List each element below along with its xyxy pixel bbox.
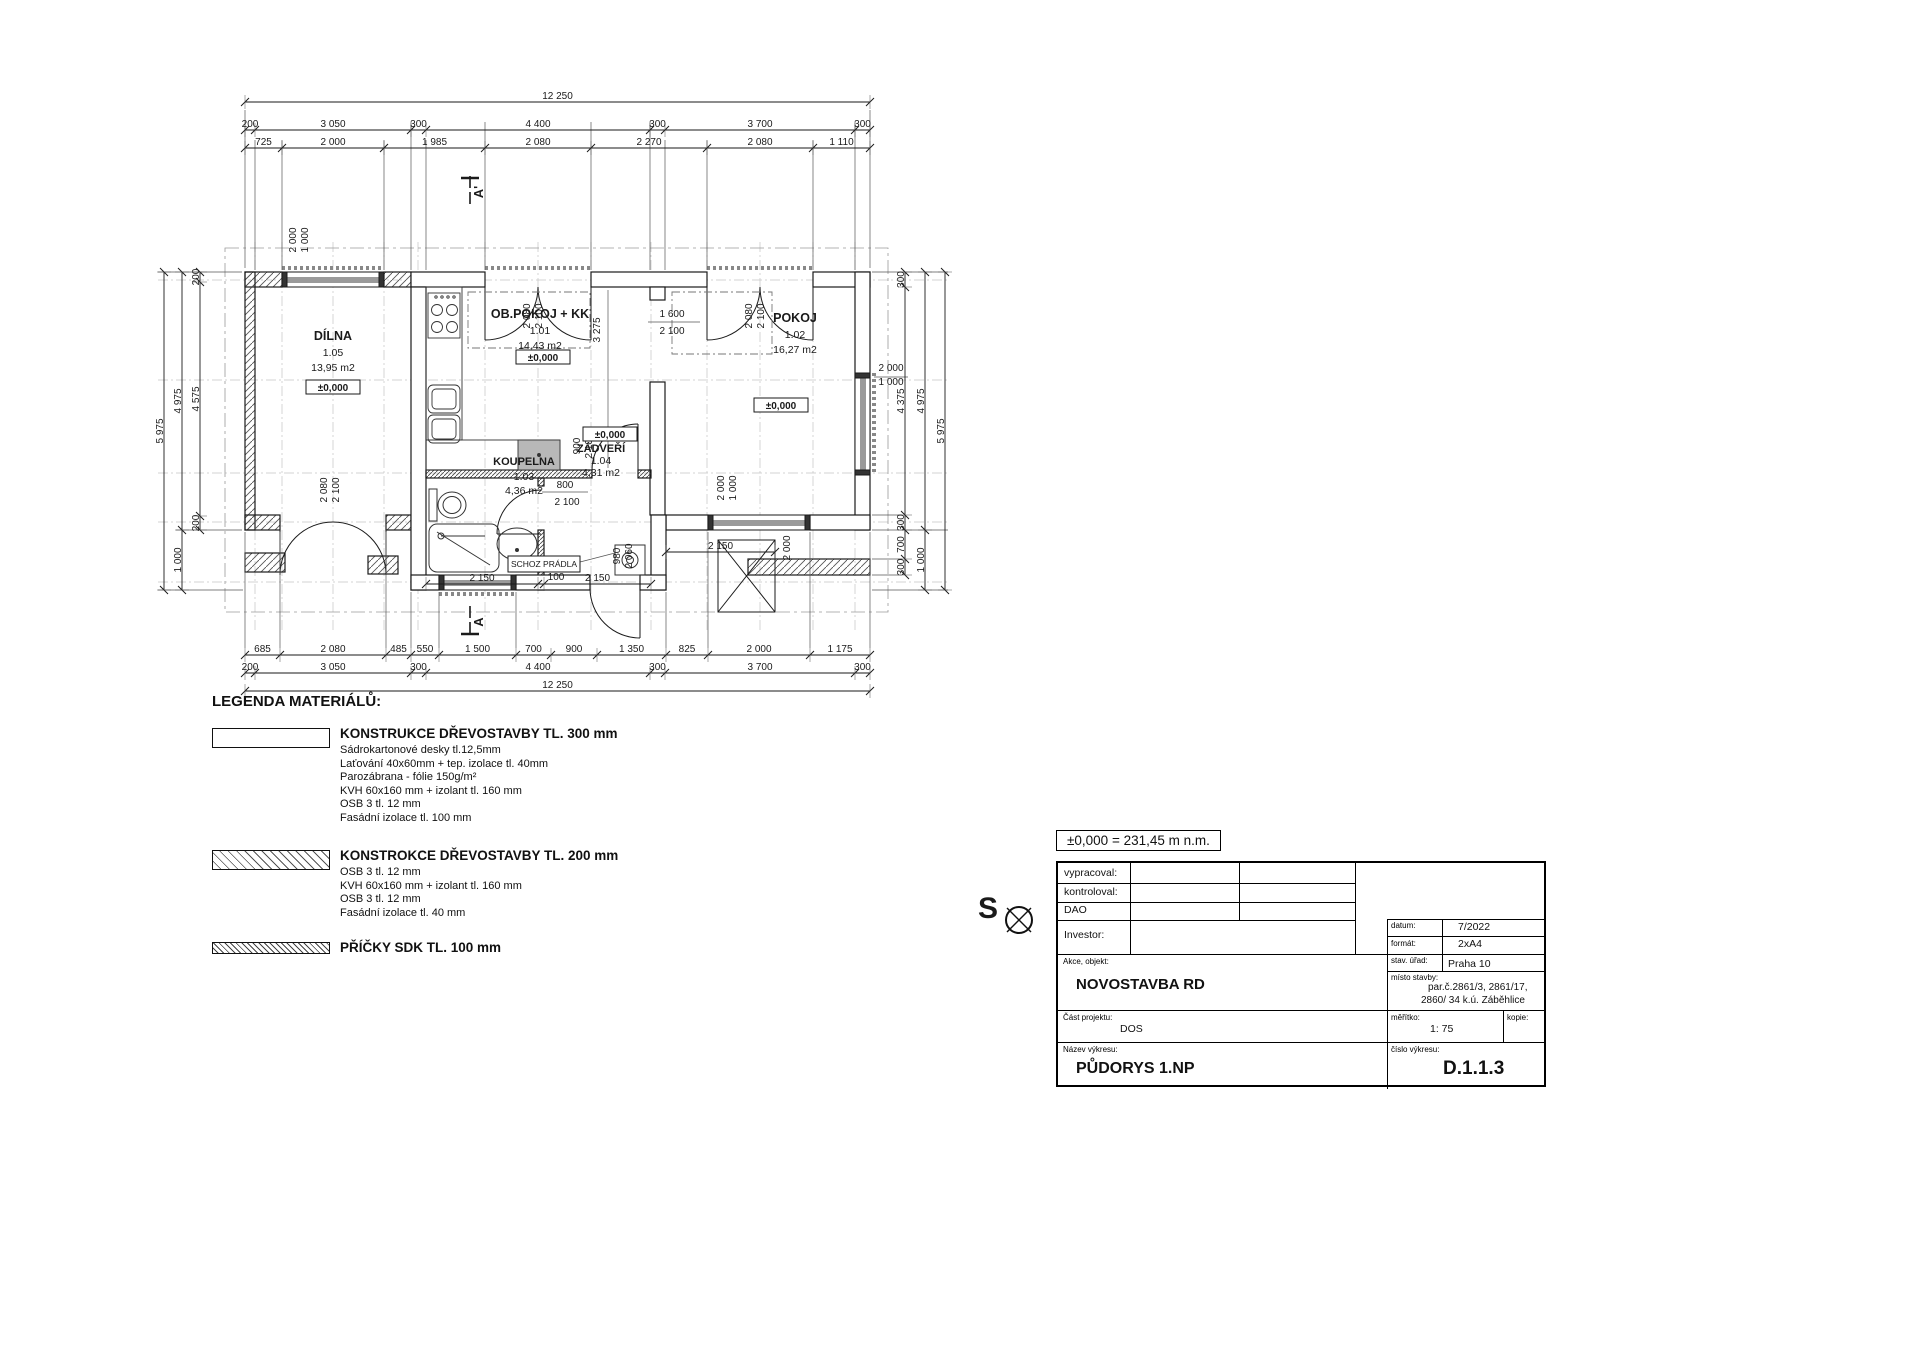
room-name: ZÁDVEŘÍ (577, 442, 626, 455)
tb-dao: DAO (1064, 904, 1087, 916)
dim-text: 550 (417, 644, 434, 655)
tb-akce-value: NOVOSTAVBA RD (1076, 976, 1205, 993)
tb-cislo-label: číslo výkresu: (1391, 1045, 1439, 1054)
dim-text: 4 575 (191, 386, 202, 411)
dim-text: 2 080 (525, 137, 550, 148)
room-number: 1.04 (591, 455, 612, 467)
legend-line: OSB 3 tl. 12 mm (340, 866, 632, 880)
tb-cast-label: Část projektu: (1063, 1013, 1112, 1022)
dim-text: 2 000 (716, 475, 727, 500)
dim-text: 300 (854, 119, 871, 130)
dim-text: 1 000 (173, 547, 184, 572)
room-name: OB.POKOJ + KK (491, 307, 589, 321)
room-labels: DÍLNA 1.05 13,95 m2 OB.POKOJ + KK 1.01 1… (311, 307, 817, 497)
toilet-icon (429, 489, 466, 521)
dim-text: 4 975 (173, 388, 184, 413)
level-mark: ±0,000 (766, 401, 797, 412)
room-name: KOUPELNA (493, 456, 555, 468)
tb-nazev-label: Název výkresu: (1063, 1045, 1118, 1054)
dim-text: 4 375 (896, 388, 907, 413)
dim-text: 200 (191, 268, 202, 285)
tb-kontroloval-label: kontroloval: (1064, 886, 1118, 898)
room-name: DÍLNA (314, 328, 352, 343)
dim-text: 725 (255, 137, 272, 148)
dim-text: 2 100 (659, 326, 684, 337)
dim-text: 100 (548, 572, 565, 583)
legend-item-title: KONSTROKCE DŘEVOSTAVBY TL. 200 mm (340, 848, 632, 863)
window-dilna-top (282, 272, 384, 287)
tb-misto-value1: par.č.2861/3, 2861/17, (1428, 982, 1528, 993)
tb-misto-label: místo stavby: (1391, 973, 1438, 982)
dimension-lines: 12 2502003 0503004 4003003 7003007252 00… (155, 91, 952, 698)
dim-text: 300 (896, 558, 907, 575)
dim-text: 5 975 (155, 418, 166, 443)
dim-text: 4 400 (525, 119, 550, 130)
dim-text: 1 000 (300, 227, 311, 252)
dim-text: 1 110 (829, 137, 854, 148)
north-arrow: S (970, 878, 1050, 953)
tb-urad-value: Praha 10 (1448, 958, 1491, 970)
legend: LEGENDA MATERIÁLŮ: KONSTRUKCE DŘEVOSTAVB… (212, 693, 632, 710)
dim-text: 2 100 (554, 497, 579, 508)
tb-meritko-label: měřítko: (1391, 1013, 1420, 1022)
dim-text: 300 (649, 662, 666, 673)
dim-text: 1 600 (659, 309, 684, 320)
dim-text: 3 050 (320, 662, 345, 673)
level-mark-texts: ±0,000 ±0,000 ±0,000 ±0,000 (318, 353, 797, 441)
dim-text: 2 000 (288, 227, 299, 252)
dim-text: 300 (896, 514, 907, 531)
dim-text: 2 150 (469, 573, 494, 584)
dim-text: 300 (854, 662, 871, 673)
window-pokoj-right (855, 373, 870, 475)
room-number: 1.03 (514, 471, 535, 483)
dim-text: 2 150 (585, 573, 610, 584)
dim-text: 980 (612, 547, 623, 564)
dim-text: 2 080 (747, 137, 772, 148)
legend-item-300: KONSTRUKCE DŘEVOSTAVBY TL. 300 mm Sádrok… (212, 726, 632, 825)
dim-text: 700 (896, 536, 907, 553)
legend-line: OSB 3 tl. 12 mm (340, 798, 632, 812)
page: 12 2502003 0503004 4003003 7003007252 00… (0, 0, 1920, 1357)
room-number: 1.05 (323, 347, 344, 359)
dim-text: 2 000 (782, 535, 793, 560)
room-number: 1.02 (785, 329, 806, 341)
room-name: POKOJ (773, 311, 817, 325)
dim-text: 2 270 (636, 137, 661, 148)
dim-text: 300 (410, 119, 427, 130)
legend-item-title: KONSTRUKCE DŘEVOSTAVBY TL. 300 mm (340, 726, 632, 741)
legend-item-title: PŘÍČKY SDK TL. 100 mm (340, 940, 632, 955)
washbasin-icon (497, 528, 537, 560)
dim-text: 2 080 (320, 644, 345, 655)
room-number: 1.01 (530, 325, 551, 337)
title-block: vypracoval: kontroloval: DAO Investor: d… (1056, 861, 1546, 1087)
tb-cislo-value: D.1.1.3 (1443, 1058, 1504, 1080)
stove-icon (428, 293, 460, 338)
legend-item-100: PŘÍČKY SDK TL. 100 mm (212, 940, 632, 958)
elevation-note: ±0,000 = 231,45 m n.m. (1056, 830, 1221, 851)
dim-text: 200 (242, 119, 259, 130)
dim-text: 200 (242, 662, 259, 673)
dim-text: 300 (410, 662, 427, 673)
legend-line: Fasádní izolace tl. 100 mm (340, 812, 632, 826)
dim-text: 2 060 (624, 543, 635, 568)
legend-line: KVH 60x160 mm + izolant tl. 160 mm (340, 785, 632, 799)
dim-text: 1 500 (465, 644, 490, 655)
dim-text: 12 250 (542, 91, 573, 102)
legend-line: Laťování 40x60mm + tep. izolace tl. 40mm (340, 758, 632, 772)
dim-text: 800 (557, 480, 574, 491)
level-mark: ±0,000 (528, 353, 559, 364)
dim-text: 3 050 (320, 119, 345, 130)
legend-title: LEGENDA MATERIÁLŮ: (212, 693, 632, 710)
dim-text: 3 700 (747, 662, 772, 673)
dim-text: 1 985 (422, 137, 447, 148)
legend-line: OSB 3 tl. 12 mm (340, 893, 632, 907)
room-area: 13,95 m2 (311, 362, 355, 374)
dim-text: 12 250 (542, 680, 573, 691)
dim-text: 3 275 (592, 317, 603, 342)
dim-text: 2 000 (878, 363, 903, 374)
dim-text: 2 000 (746, 644, 771, 655)
dim-text: 5 975 (936, 418, 947, 443)
room-area: 16,27 m2 (773, 344, 817, 356)
north-label: S (978, 892, 998, 925)
legend-line: KVH 60x160 mm + izolant tl. 160 mm (340, 880, 632, 894)
tb-datum-value: 7/2022 (1458, 921, 1490, 933)
dim-text: 2 100 (331, 477, 342, 502)
tb-format-value: 2xA4 (1458, 938, 1482, 950)
tb-akce-label: Akce, objekt: (1063, 957, 1109, 966)
room-area: 4,36 m2 (505, 485, 543, 497)
dim-text: 1 175 (827, 644, 852, 655)
dim-text: 3 700 (747, 119, 772, 130)
tb-misto-value2: 2860/ 34 k.ú. Záběhlice (1421, 995, 1525, 1006)
room-area: 4,31 m2 (582, 467, 620, 479)
level-mark: ±0,000 (595, 430, 626, 441)
tb-datum-label: datum: (1391, 921, 1415, 930)
shower-icon (429, 524, 499, 572)
dim-text: 1 000 (878, 377, 903, 388)
dim-text: 2 080 (319, 477, 330, 502)
laundry-chute: SCHOZ PRÁDLA (508, 556, 580, 572)
legend-swatch-hatch-thin (212, 942, 330, 954)
tb-nazev-value: PŮDORYS 1.NP (1076, 1060, 1195, 1078)
dim-text: 2 080 (744, 303, 755, 328)
legend-swatch-hatch (212, 850, 330, 870)
compass-icon (1006, 907, 1032, 933)
tb-cast-value: DOS (1120, 1023, 1143, 1035)
tb-format-label: formát: (1391, 939, 1416, 948)
dim-text: A (471, 617, 486, 627)
dim-text: A' (471, 186, 486, 198)
tb-investor-label: Investor: (1064, 929, 1104, 941)
dim-text: 700 (525, 644, 542, 655)
dim-text: 300 (649, 119, 666, 130)
dim-text: 2 150 (708, 541, 733, 552)
tb-urad-label: stav. úřad: (1391, 956, 1428, 965)
dim-text: 2 100 (756, 303, 767, 328)
section-marks (461, 176, 479, 636)
dim-text: 825 (679, 644, 696, 655)
tb-kopie-label: kopie: (1507, 1013, 1528, 1022)
tb-vypracoval-label: vypracoval: (1064, 867, 1117, 879)
dim-text: 485 (390, 644, 407, 655)
legend-line: Sádrokartonové desky tl.12,5mm (340, 744, 632, 758)
fridge-icon (428, 385, 460, 443)
dim-text: 4 975 (916, 388, 927, 413)
dim-text: 2 000 (320, 137, 345, 148)
level-mark: ±0,000 (318, 383, 349, 394)
legend-line: Parozábrana - fólie 150g/m² (340, 771, 632, 785)
dim-text: 4 400 (525, 662, 550, 673)
dim-text: 685 (254, 644, 271, 655)
dim-text: 300 (896, 271, 907, 288)
dim-text: 900 (566, 644, 583, 655)
legend-item-200: KONSTROKCE DŘEVOSTAVBY TL. 200 mm OSB 3 … (212, 848, 632, 920)
legend-line: Fasádní izolace tl. 40 mm (340, 907, 632, 921)
dim-text: 1 000 (728, 475, 739, 500)
tb-meritko-value: 1: 75 (1430, 1023, 1453, 1035)
laundry-chute-label: SCHOZ PRÁDLA (511, 559, 577, 569)
door-entrance (590, 588, 640, 638)
dim-text: 1 000 (916, 547, 927, 572)
dim-text: 1 350 (619, 644, 644, 655)
window-pokoj-bottom (708, 515, 810, 530)
floor-plan-svg: 12 2502003 0503004 4003003 7003007252 00… (0, 0, 1920, 1357)
dim-text: 200 (191, 514, 202, 531)
legend-swatch-plain (212, 728, 330, 748)
